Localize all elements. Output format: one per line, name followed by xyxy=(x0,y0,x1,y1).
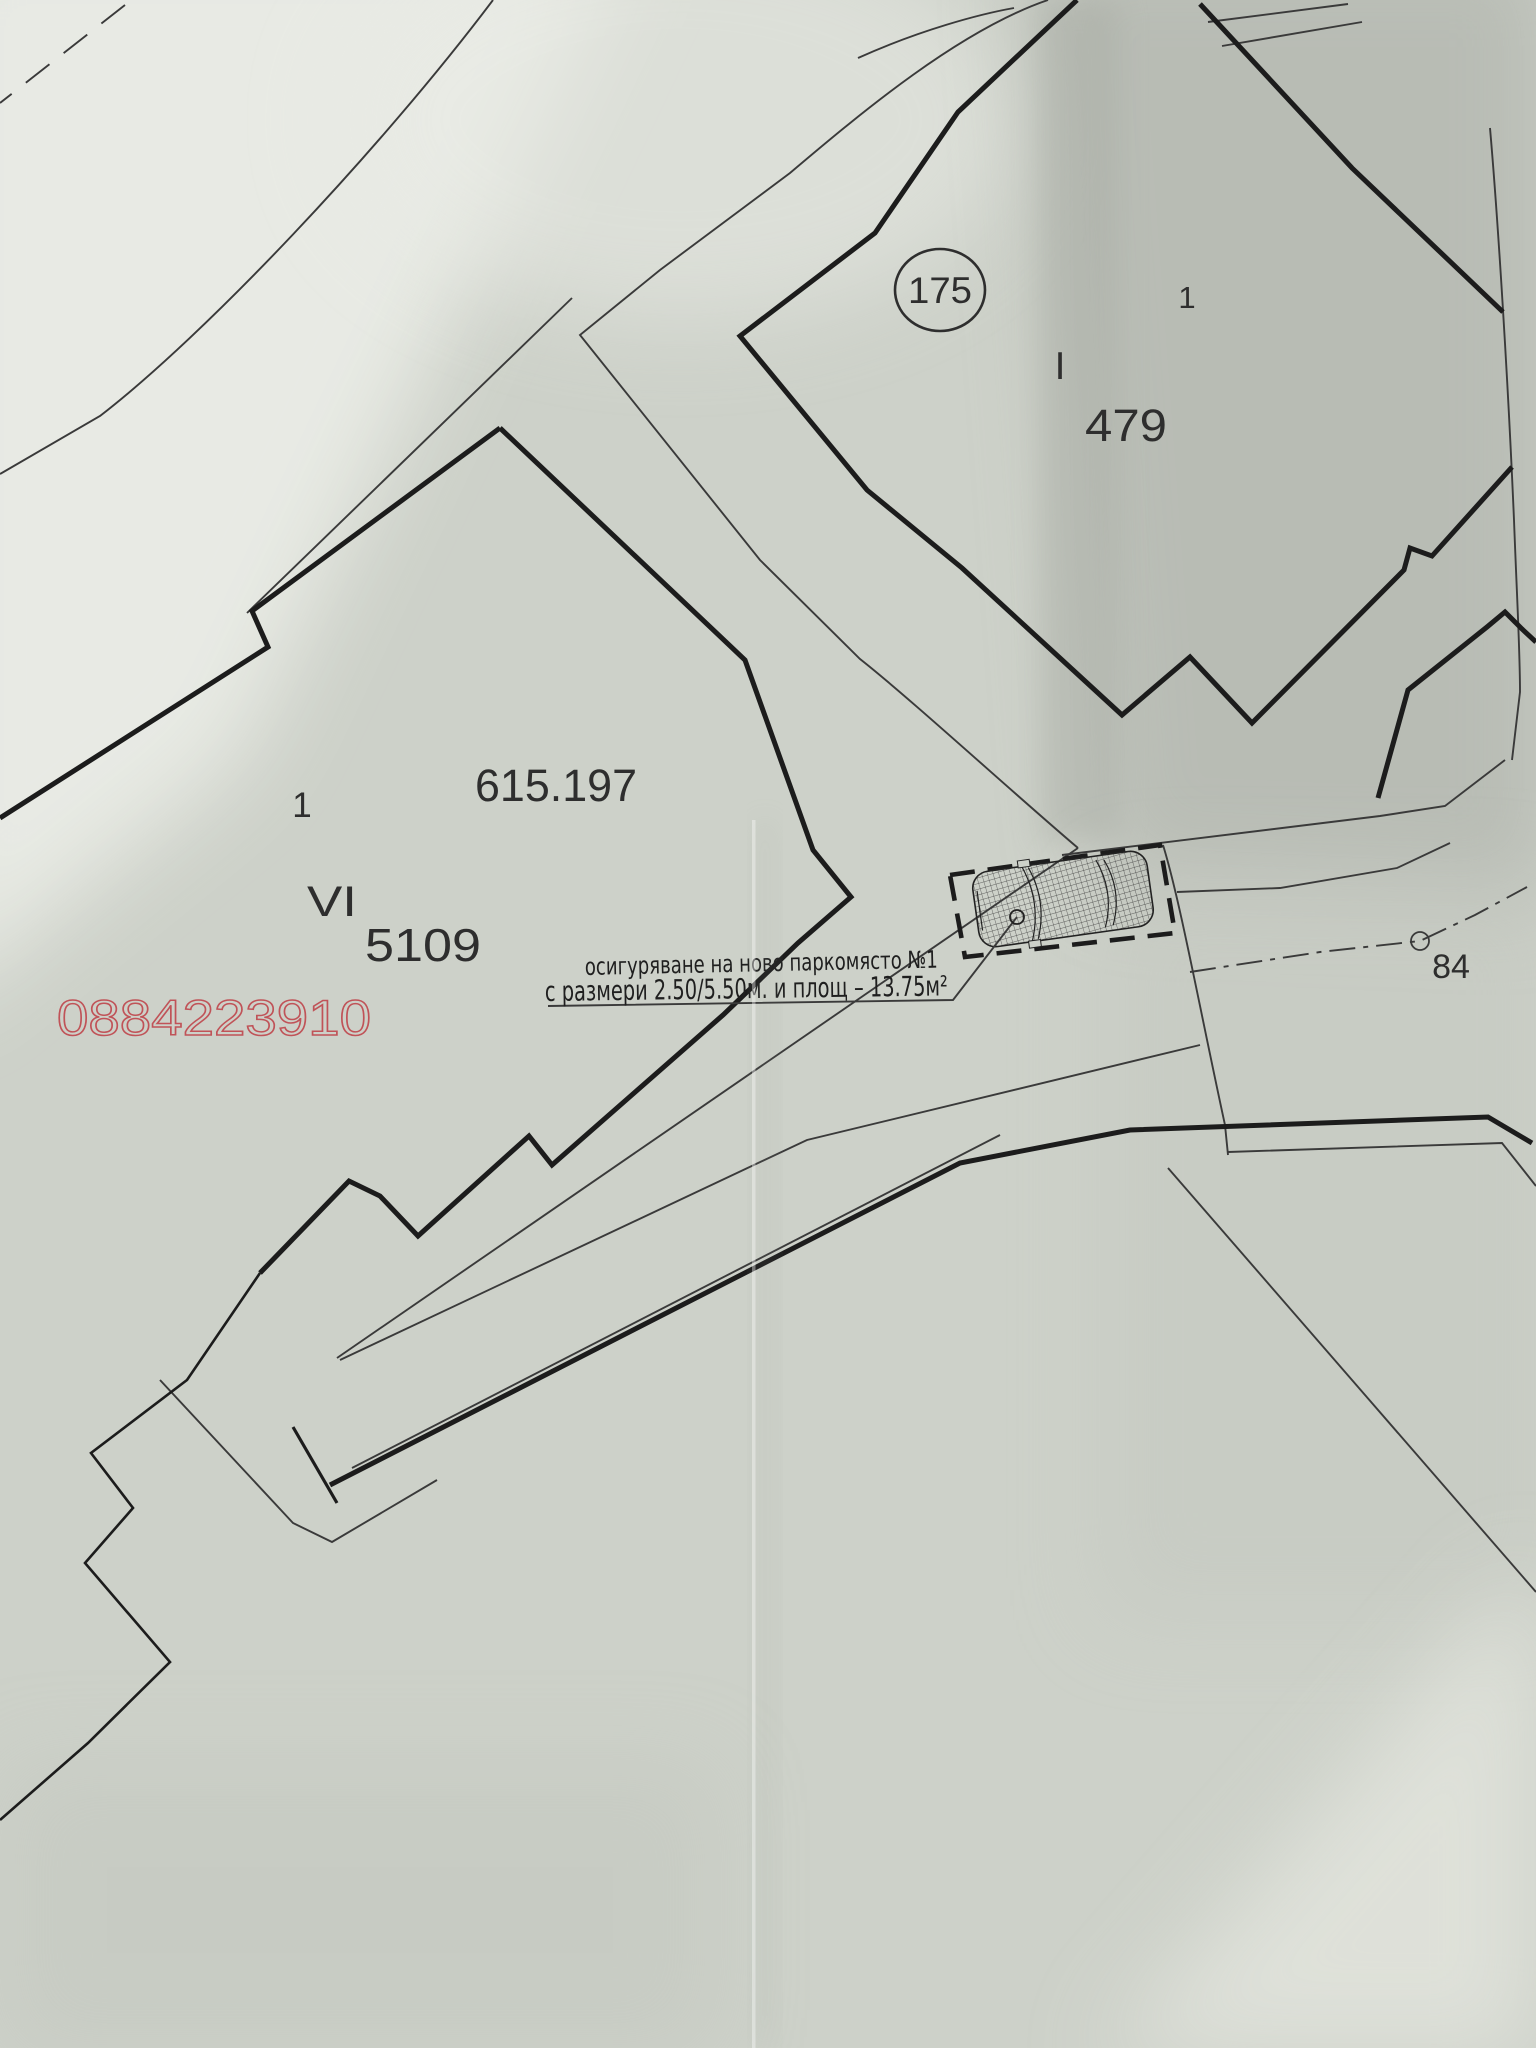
cadastral-plan-photo: 175 1 I 479 615.197 1 VI 5109 0884223910… xyxy=(0,0,1536,2048)
annotation-line-2: с размери 2.50/5.50м. и площ – 13.75м² xyxy=(545,970,948,1008)
cadastral-plan-drawing: 175 1 I 479 615.197 1 VI 5109 0884223910… xyxy=(0,0,1536,2048)
parcel-479-roman-numeral: I xyxy=(1055,345,1066,388)
parcel-479-circle-label: 175 xyxy=(908,270,972,311)
parcel-5109-roman-numeral: VI xyxy=(307,878,357,926)
parcel-5109-corner-number: 1 xyxy=(292,786,311,825)
parcel-5109-number: 5109 xyxy=(365,919,481,971)
paper-fold-crease xyxy=(752,820,773,2048)
watermark-phone-number: 0884223910 xyxy=(57,990,371,1046)
parcel-479-corner-number: 1 xyxy=(1178,280,1195,315)
survey-point-label: 84 xyxy=(1432,948,1470,986)
parcel-479-area-number: 479 xyxy=(1085,400,1167,451)
elevation-number: 615.197 xyxy=(475,760,637,811)
